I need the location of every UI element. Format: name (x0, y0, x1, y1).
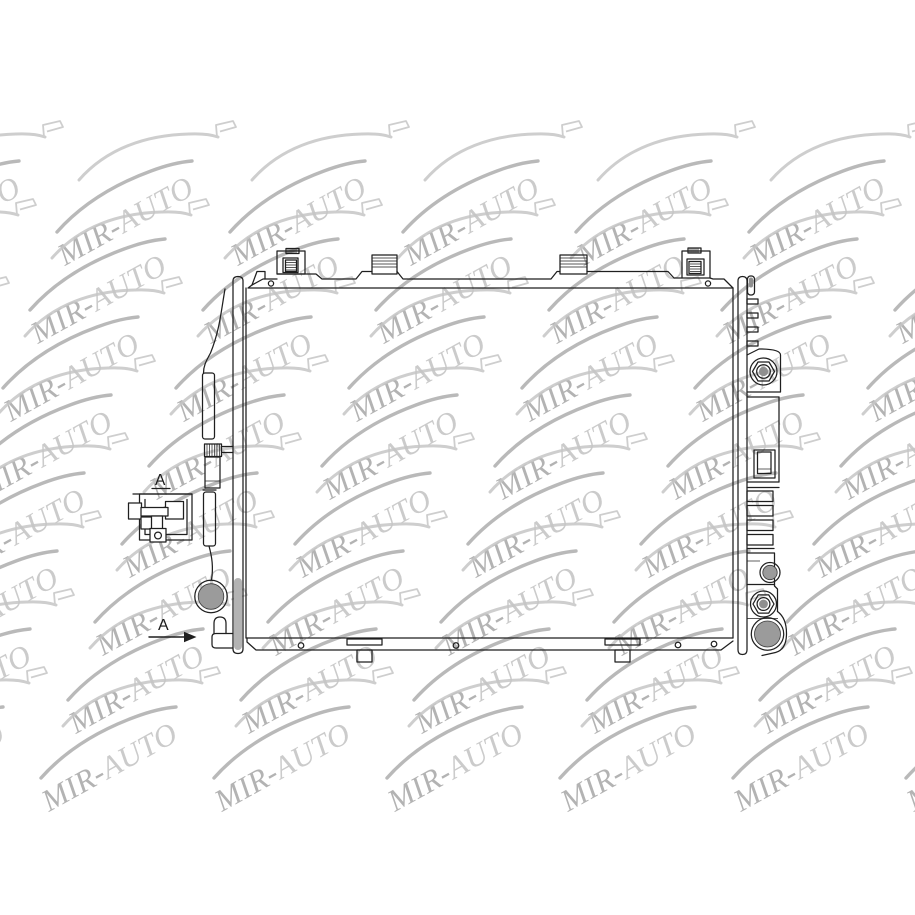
top-tank-right-chamfer (710, 278, 733, 288)
watermark-car-flag-icon (373, 667, 393, 683)
watermark-car-flag-icon (389, 121, 409, 137)
watermark-car-flag-icon (719, 667, 739, 683)
top-ribbed-block-left (372, 255, 397, 274)
watermark-car-flag-icon (81, 511, 101, 527)
watermark-car-flag-icon (54, 589, 74, 605)
watermark-car-flag-icon (16, 199, 36, 215)
watermark-brand-text: MIR-AUTO (900, 715, 915, 819)
watermark-brand-text: MIR-AUTO (35, 715, 184, 819)
watermark-brand-text: MIR-AUTO (554, 715, 703, 819)
watermark-car-flag-icon (481, 355, 501, 371)
watermark-car-roof-line (0, 680, 29, 726)
watermark-car-flag-icon (908, 121, 915, 137)
watermark-car-flag-icon (135, 355, 155, 371)
watermark-tile: MIR-AUTO (224, 121, 409, 273)
watermark-brand-text: MIR-AUTO (224, 169, 373, 273)
watermark-brand-text: MIR-AUTO (235, 637, 384, 741)
watermark-car-flag-icon (362, 199, 382, 215)
watermark-car-flag-icon (454, 433, 474, 449)
watermark-car-flag-icon (854, 277, 874, 293)
watermark-car-flag-icon (200, 667, 220, 683)
watermark-car-flag-icon (216, 121, 236, 137)
detail-a-hole-plate (150, 529, 166, 543)
watermark-brand-text: MIR-AUTO (570, 169, 719, 273)
watermark-brand-text: MIR-AUTO (489, 403, 638, 507)
watermark-brand-text: MIR-AUTO (0, 169, 26, 273)
watermark-car-flag-icon (189, 199, 209, 215)
watermark-brand-text: MIR-AUTO (581, 637, 730, 741)
watermark-car-flag-icon (708, 199, 728, 215)
watermark-car-flag-icon (546, 667, 566, 683)
watermark-car-roof-line (0, 212, 18, 258)
watermark-brand-text: MIR-AUTO (24, 247, 173, 351)
watermark-car-flag-icon (627, 433, 647, 449)
watermark-brand-text: MIR-AUTO (608, 559, 757, 663)
top-right-screw-hole (705, 281, 710, 286)
watermark-brand-text: MIR-AUTO (89, 559, 238, 663)
radiator-line-drawing-canvas: MIR-AUTOMIR-AUTOMIR-AUTOMIR-AUTOMIR-AUTO… (0, 0, 915, 915)
watermark-car-flag-icon (43, 121, 63, 137)
watermark-brand-text: MIR-AUTO (0, 637, 37, 741)
outlet-port (751, 612, 786, 656)
watermark-tile: MIR-AUTO (900, 667, 915, 819)
upper-fitting-bore (759, 367, 768, 376)
inlet-port-opening (198, 584, 224, 610)
watermark-brand-text: MIR-AUTO (662, 403, 811, 507)
watermark-brand-text: MIR-AUTO (62, 637, 211, 741)
section-a-label: A (158, 617, 169, 634)
watermark-tile: MIR-AUTO (51, 121, 236, 273)
watermark-brand-text: MIR-AUTO (381, 715, 530, 819)
watermark-tile: MIR-AUTO (743, 121, 915, 273)
watermark-brand-text: MIR-AUTO (208, 715, 357, 819)
lower-fitting-bore (759, 600, 768, 609)
watermark-car-flag-icon (773, 511, 793, 527)
watermark-car-flag-icon (108, 433, 128, 449)
watermark-car-flag-icon (735, 121, 755, 137)
watermark-brand-text: MIR-AUTO (262, 559, 411, 663)
watermark-car-flag-icon (400, 589, 420, 605)
watermark-car-flag-icon (308, 355, 328, 371)
watermark-brand-text: MIR-AUTO (435, 559, 584, 663)
small-port-block (747, 553, 780, 586)
watermark-car-flag-icon (681, 277, 701, 293)
bottom-hole-3 (675, 642, 681, 648)
side-plate-shaded-end (234, 578, 242, 650)
outlet-port-opening (755, 621, 781, 647)
watermark-brand-text: MIR-AUTO (516, 325, 665, 429)
watermark-brand-text: MIR-AUTO (116, 481, 265, 585)
watermark-car-flag-icon (881, 199, 901, 215)
watermark-car-hood-line (906, 707, 915, 778)
watermark-layer: MIR-AUTOMIR-AUTOMIR-AUTOMIR-AUTOMIR-AUTO… (0, 121, 915, 819)
watermark-car-flag-icon (827, 355, 847, 371)
watermark-tile: MIR-AUTO (0, 121, 63, 273)
watermark-brand-text: MIR-AUTO (397, 169, 546, 273)
watermark-car-flag-icon (654, 355, 674, 371)
watermark-car-flag-icon (892, 667, 912, 683)
watermark-tile: MIR-AUTO (889, 199, 915, 351)
watermark-brand-text: MIR-AUTO (51, 169, 200, 273)
watermark-brand-text: MIR-AUTO (316, 403, 465, 507)
watermark-brand-text: MIR-AUTO (689, 325, 838, 429)
watermark-brand-text: MIR-AUTO (727, 715, 876, 819)
watermark-brand-text: MIR-AUTO (343, 325, 492, 429)
watermark-brand-text: MIR-AUTO (408, 637, 557, 741)
watermark-tile: MIR-AUTO (570, 121, 755, 273)
watermark-brand-text: MIR-AUTO (462, 481, 611, 585)
detail-a-label: A (155, 472, 166, 489)
detail-a-left-lug (129, 503, 142, 519)
watermark-car-flag-icon (562, 121, 582, 137)
watermark-tile: MIR-AUTO (397, 121, 582, 273)
watermark-car-flag-icon (800, 433, 820, 449)
watermark-car-flag-icon (535, 199, 555, 215)
watermark-car-flag-icon (0, 277, 9, 293)
watermark-brand-text: MIR-AUTO (289, 481, 438, 585)
watermark-car-flag-icon (573, 589, 593, 605)
watermark-car-flag-icon (254, 511, 274, 527)
product-image: MIR-AUTOMIR-AUTOMIR-AUTOMIR-AUTOMIR-AUTO… (0, 0, 915, 915)
watermark-car-flag-icon (162, 277, 182, 293)
small-port-opening (763, 565, 777, 579)
top-pin-core (749, 278, 753, 288)
watermark-brand-text: MIR-AUTO (743, 169, 892, 273)
watermark-brand-text: MIR-AUTO (0, 325, 145, 429)
watermark-brand-text: MIR-AUTO (197, 247, 346, 351)
detail-a-cross-bar (141, 508, 168, 517)
watermark-brand-text: MIR-AUTO (0, 715, 10, 819)
watermark-brand-text: MIR-AUTO (170, 325, 319, 429)
watermark-car-flag-icon (27, 667, 47, 683)
watermark-brand-text: MIR-AUTO (370, 247, 519, 351)
lower-foot-bracket (212, 634, 233, 649)
drain-nipple (214, 617, 226, 634)
watermark-car-flag-icon (281, 433, 301, 449)
watermark-car-flag-icon (600, 511, 620, 527)
watermark-car-hood-line (895, 239, 915, 310)
watermark-car-flag-icon (427, 511, 447, 527)
watermark-brand-text: MIR-AUTO (543, 247, 692, 351)
